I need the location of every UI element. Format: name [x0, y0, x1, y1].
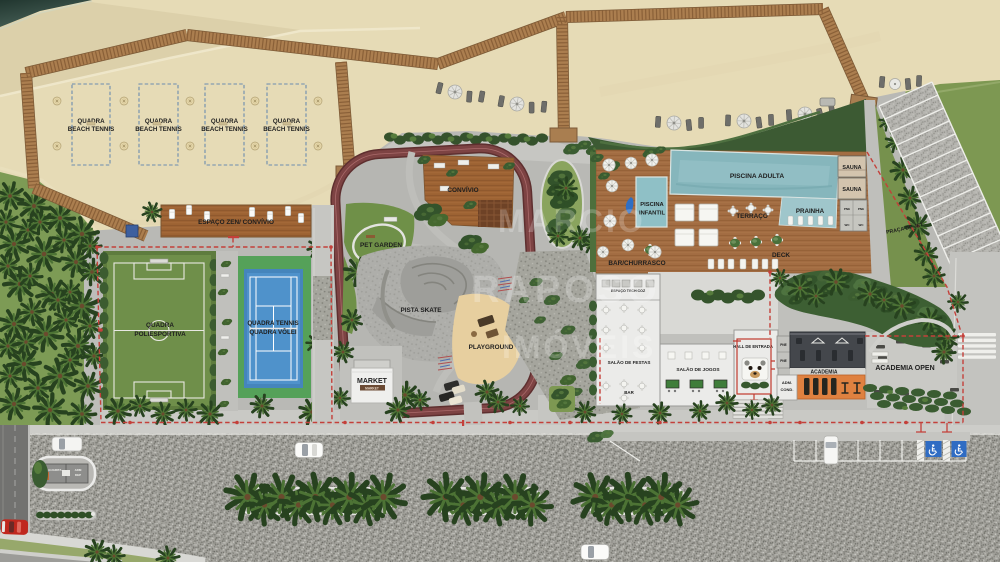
svg-text:IMÓVEIS: IMÓVEIS [502, 329, 656, 365]
svg-text:COND.: COND. [781, 387, 794, 392]
svg-text:RAPOSO: RAPOSO [472, 269, 661, 311]
svg-text:BEACH TENNIS: BEACH TENNIS [201, 126, 247, 133]
svg-text:PNE: PNE [844, 207, 850, 211]
svg-text:ADM.: ADM. [782, 380, 792, 385]
svg-text:QUADRA TENNIS: QUADRA TENNIS [247, 320, 298, 327]
svg-text:QUADRA: QUADRA [146, 322, 174, 329]
svg-text:PNE: PNE [780, 343, 787, 347]
svg-text:MARCIO: MARCIO [498, 203, 646, 239]
svg-text:ADM: ADM [75, 468, 82, 472]
svg-text:QUADRA VÔLEI: QUADRA VÔLEI [249, 328, 296, 336]
svg-text:BEACH TENNIS: BEACH TENNIS [68, 126, 114, 133]
svg-text:HALL DE ENTRADA: HALL DE ENTRADA [733, 344, 773, 349]
svg-text:SALÃO DE JOGOS: SALÃO DE JOGOS [676, 366, 720, 373]
svg-text:POLIESPORTIVA: POLIESPORTIVA [134, 331, 186, 338]
svg-text:TERRAÇO: TERRAÇO [736, 213, 768, 220]
svg-text:MARKET: MARKET [365, 387, 379, 391]
svg-text:PISCINA ADULTA: PISCINA ADULTA [730, 173, 784, 180]
svg-text:DECK: DECK [772, 252, 790, 259]
svg-text:WC: WC [845, 223, 851, 227]
svg-text:CONVÍVIO: CONVÍVIO [447, 185, 478, 194]
svg-text:WC: WC [859, 223, 865, 227]
svg-text:PNE: PNE [858, 207, 864, 211]
svg-text:BAR/CHURRASCO: BAR/CHURRASCO [608, 260, 665, 267]
svg-text:PNE: PNE [780, 359, 787, 363]
svg-text:GUARITA: GUARITA [48, 468, 62, 472]
svg-text:SAUNA: SAUNA [842, 187, 861, 193]
svg-text:BEACH TENNIS: BEACH TENNIS [263, 126, 309, 133]
svg-text:PISTA SKATE: PISTA SKATE [400, 307, 442, 314]
svg-text:SAUNA: SAUNA [842, 165, 861, 171]
svg-text:ACADEMIA OPEN: ACADEMIA OPEN [875, 365, 934, 372]
svg-text:ESPAÇO ZEN/ CONVÍVIO: ESPAÇO ZEN/ CONVÍVIO [198, 217, 274, 226]
svg-text:MARKET: MARKET [357, 378, 388, 385]
svg-text:DEP: DEP [75, 473, 81, 477]
svg-text:BEACH TENNIS: BEACH TENNIS [135, 126, 181, 133]
svg-text:PRAINHA: PRAINHA [796, 208, 825, 215]
svg-text:BAR: BAR [624, 390, 634, 395]
